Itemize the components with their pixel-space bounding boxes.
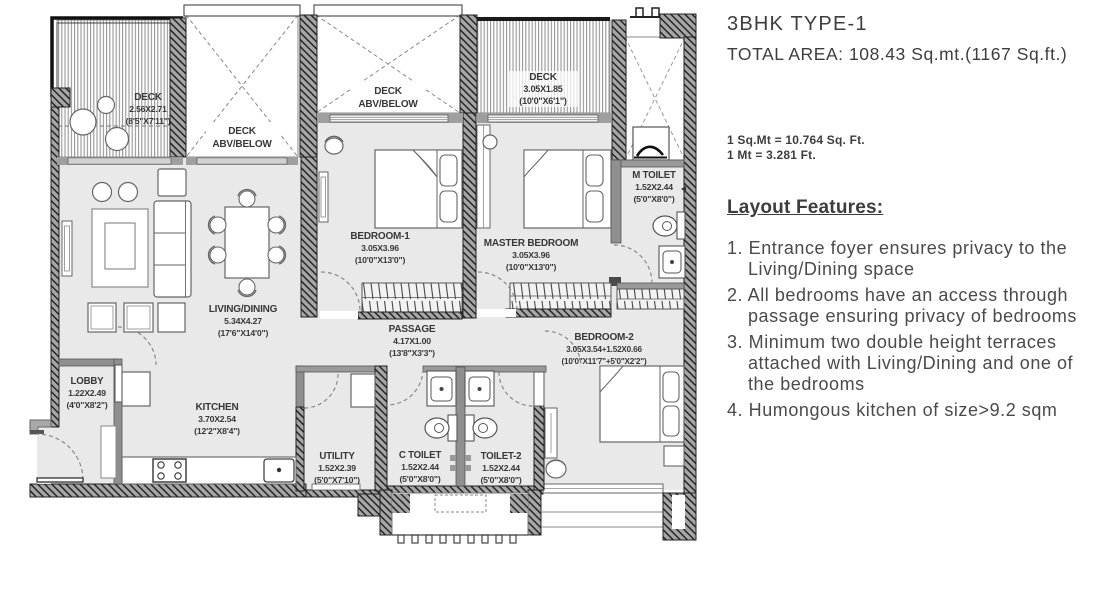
svg-text:(5'0"X8'0"): (5'0"X8'0") <box>633 194 674 204</box>
svg-text:(17'6"X14'0"): (17'6"X14'0") <box>218 328 269 338</box>
svg-text:M TOILET: M TOILET <box>632 170 676 181</box>
svg-text:3.70X2.54: 3.70X2.54 <box>198 414 236 424</box>
svg-text:LOBBY: LOBBY <box>71 376 105 387</box>
svg-text:1.52X2.39: 1.52X2.39 <box>318 463 356 473</box>
svg-text:DECK: DECK <box>134 92 163 103</box>
svg-text:(10'0"X13'0"): (10'0"X13'0") <box>506 262 557 272</box>
svg-text:TOILET-2: TOILET-2 <box>481 451 522 462</box>
svg-text:ABV/BELOW: ABV/BELOW <box>212 139 272 150</box>
svg-text:(10'0"X6'1"): (10'0"X6'1") <box>519 96 567 106</box>
svg-text:4.17X1.00: 4.17X1.00 <box>393 336 431 346</box>
svg-text:(4'0"X8'2"): (4'0"X8'2") <box>66 400 107 410</box>
svg-text:DECK: DECK <box>228 126 257 137</box>
svg-text:3.05X1.85: 3.05X1.85 <box>523 84 562 94</box>
svg-text:3.05X3.54+1.52X0.66: 3.05X3.54+1.52X0.66 <box>566 345 642 354</box>
svg-text:C TOILET: C TOILET <box>399 450 442 461</box>
svg-text:BEDROOM-2: BEDROOM-2 <box>574 332 634 343</box>
svg-text:DECK: DECK <box>529 72 558 83</box>
svg-text:KITCHEN: KITCHEN <box>195 402 238 413</box>
svg-text:3.05X3.96: 3.05X3.96 <box>361 243 399 253</box>
svg-text:PASSAGE: PASSAGE <box>389 324 436 335</box>
svg-text:1.52X2.44: 1.52X2.44 <box>401 462 439 472</box>
svg-text:BEDROOM-1: BEDROOM-1 <box>350 231 410 242</box>
svg-text:(13'8"X3'3"): (13'8"X3'3") <box>389 348 435 358</box>
svg-text:ABV/BELOW: ABV/BELOW <box>358 99 418 110</box>
svg-text:1.22X2.49: 1.22X2.49 <box>68 388 106 398</box>
svg-text:DECK: DECK <box>374 86 403 97</box>
svg-text:(8'5"X7'11"): (8'5"X7'11") <box>126 116 171 126</box>
svg-text:(12'2"X8'4"): (12'2"X8'4") <box>194 426 240 436</box>
svg-text:(5'0"X8'0"): (5'0"X8'0") <box>399 474 440 484</box>
svg-text:1.52X2.44: 1.52X2.44 <box>482 463 520 473</box>
svg-text:LIVING/DINING: LIVING/DINING <box>209 304 278 315</box>
svg-text:MASTER BEDROOM: MASTER BEDROOM <box>484 238 578 249</box>
svg-text:(10'0"X13'0"): (10'0"X13'0") <box>355 255 406 265</box>
svg-text:3.05X3.96: 3.05X3.96 <box>512 250 550 260</box>
svg-text:2.56X2.71: 2.56X2.71 <box>129 104 167 114</box>
svg-text:(5'0"X7'10"): (5'0"X7'10") <box>314 475 360 485</box>
svg-text:5.34X4.27: 5.34X4.27 <box>224 316 262 326</box>
svg-text:1.52X2.44: 1.52X2.44 <box>635 182 673 192</box>
svg-text:(10'0"X11'7"+5'0"X2'2"): (10'0"X11'7"+5'0"X2'2") <box>562 357 647 366</box>
svg-text:(5'0"X8'0"): (5'0"X8'0") <box>480 475 521 485</box>
svg-text:UTILITY: UTILITY <box>319 451 355 462</box>
